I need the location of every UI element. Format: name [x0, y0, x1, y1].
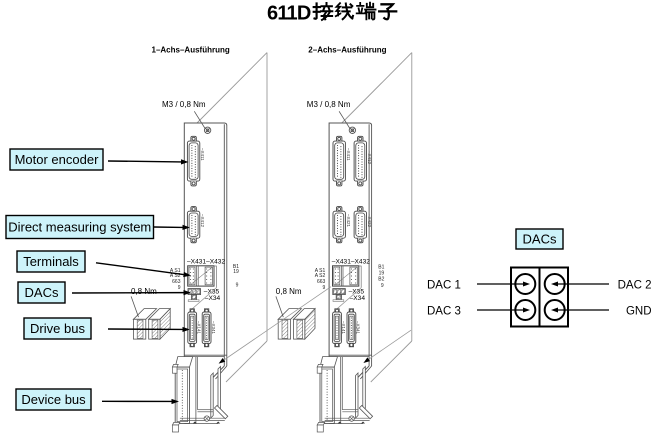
svg-text:1–Achs–Ausführung: 1–Achs–Ausführung [152, 45, 230, 54]
svg-text:Motor encoder: Motor encoder [15, 152, 99, 167]
svg-text:19: 19 [379, 270, 385, 276]
svg-text:–X411: –X411 [346, 148, 351, 161]
svg-text:–X412: –X412 [367, 151, 372, 165]
svg-text:–X141: –X141 [341, 321, 346, 335]
svg-text:9: 9 [323, 285, 326, 291]
svg-text:B2: B2 [378, 277, 384, 283]
svg-text:–X141: –X141 [196, 321, 201, 335]
svg-text:–X411: –X411 [200, 148, 205, 161]
svg-text:–X341: –X341 [356, 321, 361, 335]
svg-text:19: 19 [233, 269, 239, 275]
svg-text:9: 9 [236, 283, 239, 289]
svg-text:–X341: –X341 [211, 321, 216, 335]
svg-text:611D: 611D [267, 3, 311, 25]
svg-text:DACs: DACs [25, 285, 59, 300]
svg-text:DACs: DACs [523, 232, 557, 247]
svg-text:9: 9 [178, 285, 181, 291]
svg-text:–X431–X432: –X431–X432 [187, 259, 225, 266]
svg-text:Drive bus: Drive bus [30, 321, 85, 336]
svg-text:0,8 Nm: 0,8 Nm [131, 287, 157, 296]
svg-text:Device bus: Device bus [21, 392, 86, 407]
svg-text:–X422: –X422 [367, 214, 372, 228]
svg-text:M3 / 0,8 Nm: M3 / 0,8 Nm [307, 100, 351, 109]
svg-text:0,8 Nm: 0,8 Nm [276, 287, 302, 296]
svg-text:–X412: –X412 [200, 214, 205, 228]
svg-text:–X431–X432: –X431–X432 [332, 259, 370, 266]
svg-text:GND: GND [626, 306, 652, 318]
svg-text:Terminals: Terminals [23, 254, 79, 269]
svg-text:DAC 1: DAC 1 [427, 280, 461, 292]
svg-text:9: 9 [381, 283, 384, 289]
svg-text:DAC 3: DAC 3 [427, 306, 461, 318]
svg-text:DAC 2: DAC 2 [618, 280, 652, 292]
svg-text:2–Achs–Ausführung: 2–Achs–Ausführung [308, 45, 386, 54]
svg-text:Direct measuring system: Direct measuring system [8, 220, 151, 235]
svg-text:–X421: –X421 [346, 214, 351, 228]
svg-text:M3 / 0,8 Nm: M3 / 0,8 Nm [162, 100, 206, 109]
